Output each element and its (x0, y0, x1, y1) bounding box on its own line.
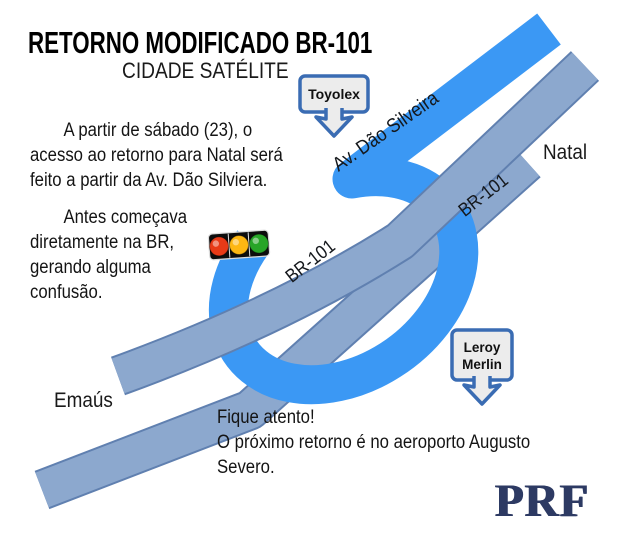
paragraph-alert: Fique atento! O próximo retorno é no aer… (217, 405, 587, 480)
leroy-merlin-sign-label-line1: Leroy (464, 340, 501, 355)
place-label-natal: Natal (543, 141, 587, 165)
paragraph-old-access: Antes começava diretamente na BR, gerand… (30, 205, 241, 305)
leroy-merlin-sign: Leroy Merlin (452, 330, 512, 404)
place-label-emaus: Emaús (54, 389, 113, 413)
prf-logo: PRF (495, 474, 589, 528)
toyolex-sign-label: Toyolex (308, 86, 360, 102)
leroy-merlin-sign-label-line2: Merlin (462, 357, 502, 372)
page-title: RETORNO MODIFICADO BR-101 (28, 25, 372, 61)
page-subtitle: CIDADE SATÉLITE (122, 58, 289, 84)
infographic-canvas: Toyolex Leroy Merlin RETORNO MODIFICADO … (0, 0, 620, 542)
paragraph-new-access: A partir de sábado (23), o acesso ao ret… (30, 118, 320, 193)
